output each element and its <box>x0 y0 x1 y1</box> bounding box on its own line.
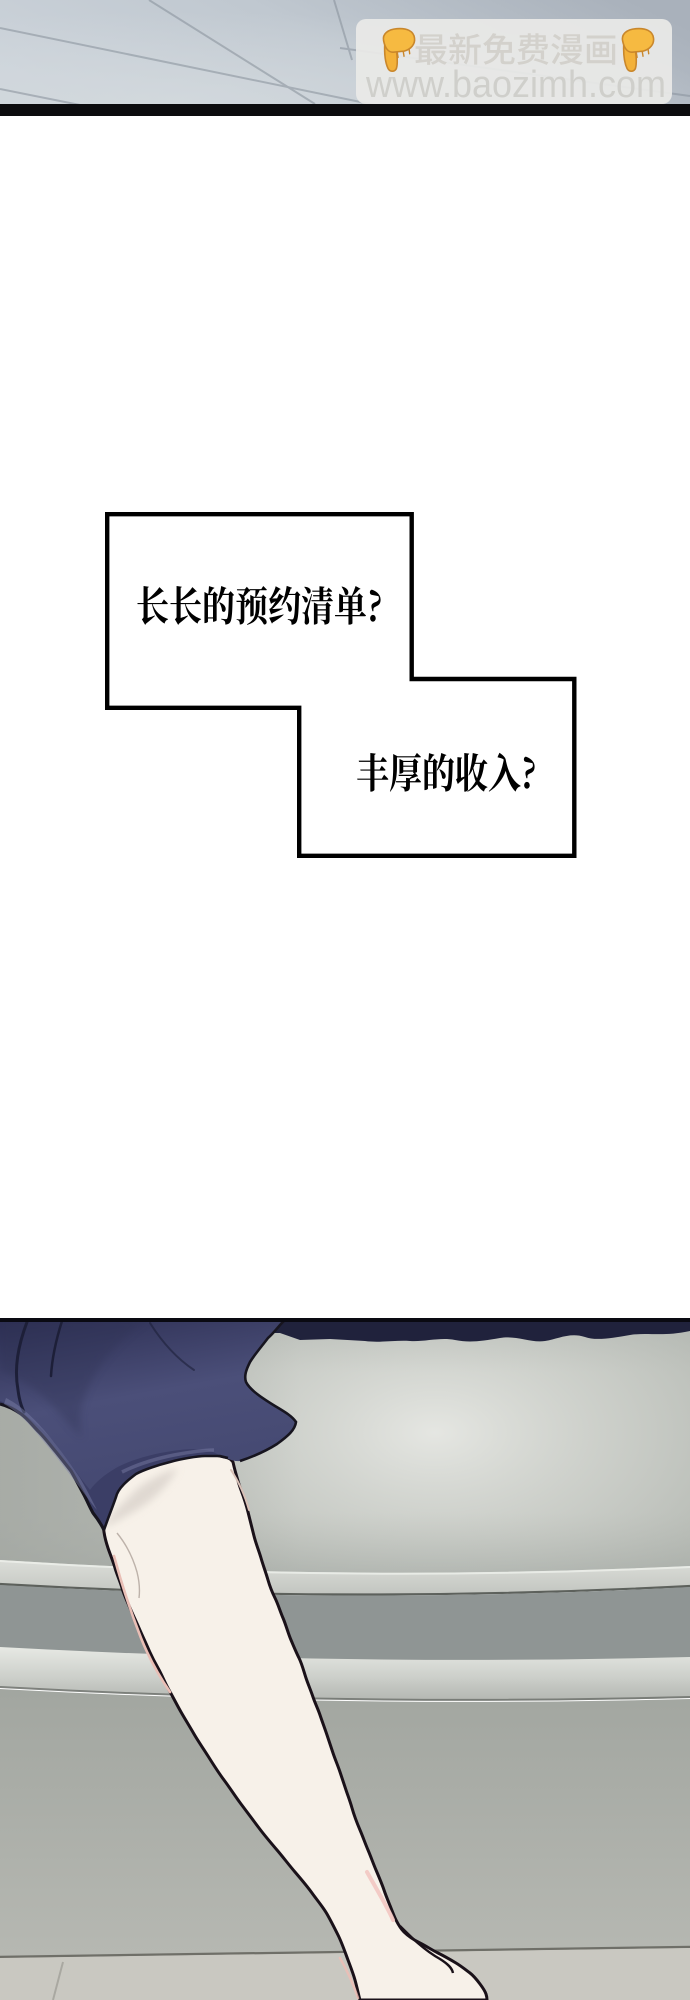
svg-text:www.baozimh.com: www.baozimh.com <box>365 64 666 106</box>
